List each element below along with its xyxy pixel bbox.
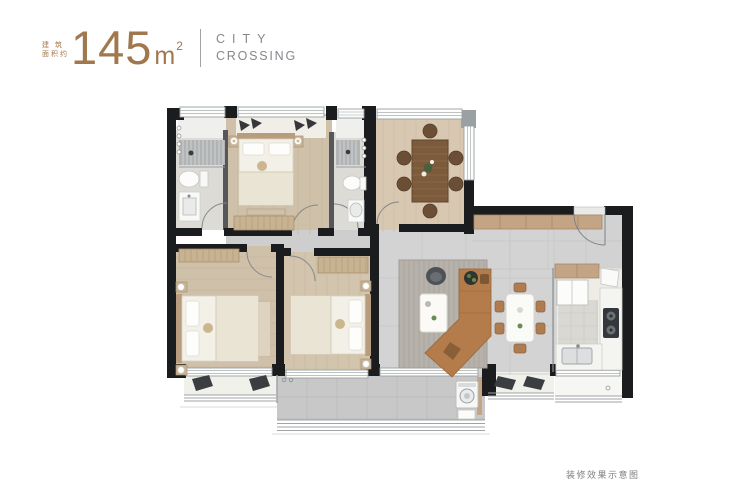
dining-chair [423,124,437,138]
area-unit: m2 [154,35,183,67]
wall [622,206,633,398]
plumbing-dots [362,146,366,150]
plumbing-dots [177,134,181,138]
vanity-basin [183,198,196,215]
lamp-glow [297,140,300,143]
table-decor [425,301,431,307]
brand-line2: CROSSING [216,49,297,64]
bed-blanket [239,172,293,205]
plant-leaf [467,274,471,278]
header: 建 筑 面积约 145 m2 CITY CROSSING [42,28,297,68]
table-plant [424,164,433,173]
bed-blanket [216,296,258,361]
sofa-pillow [480,274,489,284]
entry-threshold [574,207,605,215]
armchair-seat [430,272,442,282]
pillow [269,143,290,155]
fridge [557,280,588,305]
bed-cushion [203,323,213,333]
balcony-door [286,370,368,378]
pillow [186,331,199,356]
wall [276,244,284,374]
area-label-line1: 建 筑 [42,41,69,50]
coffee-table [420,294,447,332]
bed-cushion [335,319,345,329]
table-decor [517,307,523,313]
pillow [349,300,362,323]
faucet [576,344,580,348]
lamp [178,367,185,374]
washer-drum-inner [464,393,470,399]
service-balcony-floor [555,376,622,396]
burner-center [610,329,613,332]
header-divider [200,29,201,67]
toilet-bowl [179,171,199,187]
plumbing-dots [362,138,366,142]
faucet [188,195,191,198]
brand-line1: CITY [216,32,297,46]
wall [167,108,176,378]
floor-plan [0,0,748,498]
wall [482,364,496,396]
area-unit-sup: 2 [176,39,183,53]
wall [318,228,334,236]
dining-side-window [464,126,474,180]
pillow [186,301,199,326]
chair [495,301,504,312]
plumbing-dots [362,154,366,158]
wash-basin [350,203,362,217]
lamp [178,284,185,291]
wall [224,106,237,118]
chair [514,283,526,292]
area-unit-letter: m [154,42,175,70]
table-decor [432,316,437,321]
dining-chair [423,204,437,218]
wall [399,224,472,232]
brand-logo: CITY CROSSING [216,32,297,64]
dining-chair [449,177,463,191]
window-sill [336,118,366,138]
burner-center [610,315,613,318]
table-decor [422,172,427,177]
pillow [349,327,362,350]
wall [326,106,337,120]
washer-panel [458,383,476,387]
plumbing-dots [177,142,181,146]
dining-chair [397,151,411,165]
wall [472,206,574,215]
shower-drain [189,151,194,156]
bath1-window [180,107,225,117]
ensuite-window [338,109,364,118]
lamp-glow [233,140,236,143]
window-sill [178,116,226,138]
bed-blanket [291,296,331,354]
balcony-door [380,368,478,376]
shower-drain [346,150,351,155]
area-value: 145 [71,28,152,68]
bed-headboard [237,133,295,139]
caption: 装修效果示意图 [566,468,640,481]
wall [370,230,379,375]
shower [179,140,225,165]
table-decor [518,324,523,329]
plumbing-dots [177,126,181,130]
lamp [363,283,370,290]
bed-headboard [365,294,371,356]
toilet-bowl [343,176,361,190]
dining-table [506,294,534,342]
dining-chair [449,151,463,165]
corner-window-post [461,110,476,128]
table-decor [430,160,434,164]
wall [272,364,285,376]
wall [283,248,291,256]
bed-bench [247,209,285,215]
dining-chair [397,177,411,191]
dining-window [377,109,462,119]
wall [167,228,202,236]
wall-partition [329,132,334,232]
chair [495,323,504,334]
plant-leaf [472,278,476,282]
lamp [363,361,370,368]
pillow [243,143,264,155]
wall [314,248,374,256]
laundry-unit [458,410,475,419]
chair [536,323,545,334]
wall [364,118,376,234]
plant-pot [464,271,478,285]
toilet-tank [360,177,366,190]
wardrobe [318,257,368,273]
bed-cushion [257,161,267,171]
corner-shelf [601,268,619,287]
chair [536,301,545,312]
toilet-tank [200,171,208,187]
area-label-line2: 面积约 [42,50,69,59]
balcony-door [186,368,272,376]
plumbing-dots [177,150,181,154]
hall-cabinet [474,215,602,229]
master-window [238,107,324,117]
area-label: 建 筑 面积约 [42,41,69,59]
bed-headboard [176,294,182,363]
balcony-main-floor [277,375,485,420]
chair [514,344,526,353]
